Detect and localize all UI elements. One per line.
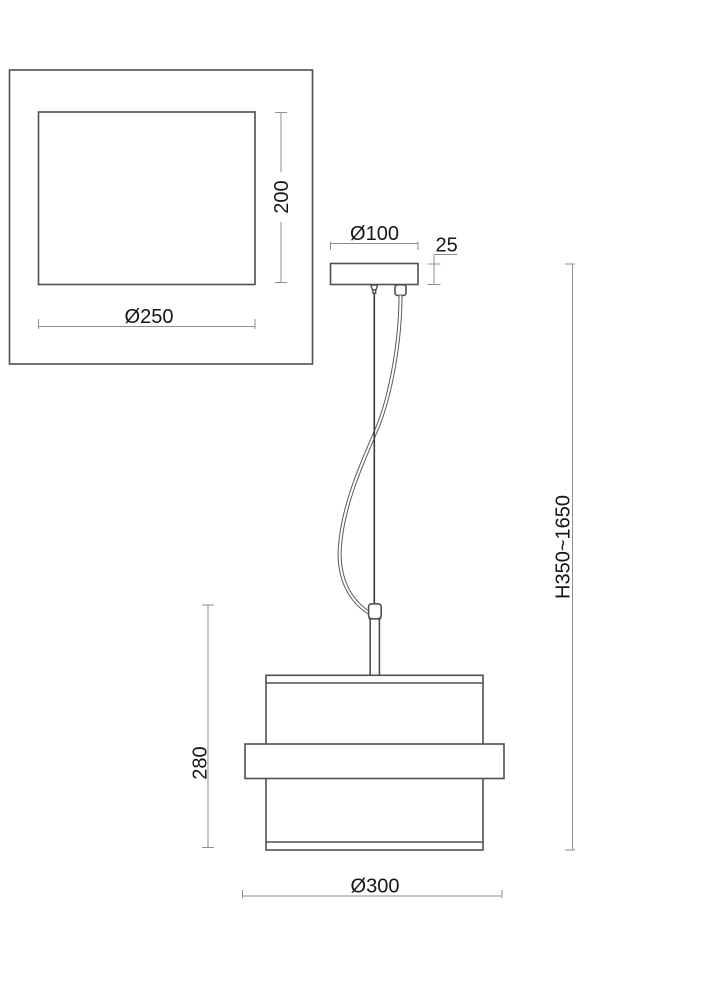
dim-label-25: 25 bbox=[436, 235, 458, 257]
dimension-drawing-page: 200 Ø250 Ø100 25 bbox=[0, 0, 707, 1000]
nipple-cone bbox=[371, 285, 378, 290]
top-view-shade-rect bbox=[39, 112, 256, 285]
power-cable bbox=[340, 296, 401, 613]
drawing-canvas: 200 Ø250 Ø100 25 bbox=[0, 0, 707, 1000]
nipple-pin bbox=[373, 290, 376, 293]
dim-overall-height: H350~1650 bbox=[553, 264, 576, 851]
dim-label-280: 280 bbox=[190, 746, 212, 779]
cable-gland bbox=[395, 285, 406, 296]
lamp-shade bbox=[245, 675, 504, 850]
dim-label-200: 200 bbox=[271, 180, 293, 213]
shade-middle-band bbox=[245, 744, 504, 779]
dim-canopy-height: 25 bbox=[428, 235, 458, 286]
stem-cap bbox=[369, 604, 382, 619]
dim-label-100: Ø100 bbox=[350, 223, 399, 245]
stem bbox=[369, 604, 382, 677]
cable-outline bbox=[340, 296, 401, 613]
dim-label-300: Ø300 bbox=[351, 876, 400, 898]
stem-tube bbox=[370, 619, 379, 677]
dim-label-250: Ø250 bbox=[125, 306, 174, 328]
cable-core bbox=[340, 296, 401, 613]
wire-nipple bbox=[371, 285, 378, 293]
dim-shade-diameter: Ø300 bbox=[243, 876, 503, 899]
dim-label-overall-height: H350~1650 bbox=[553, 495, 575, 599]
canopy bbox=[331, 264, 419, 285]
dim-shade-height: 280 bbox=[190, 605, 215, 848]
dim-canopy-diameter: Ø100 bbox=[331, 223, 419, 250]
